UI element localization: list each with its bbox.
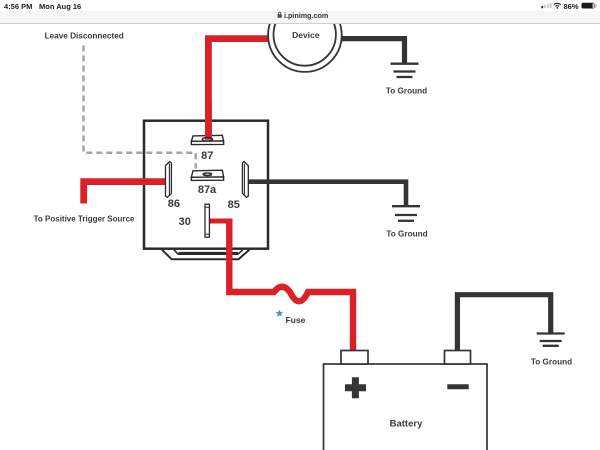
- svg-text:i.pinimg.com: i.pinimg.com: [284, 11, 328, 20]
